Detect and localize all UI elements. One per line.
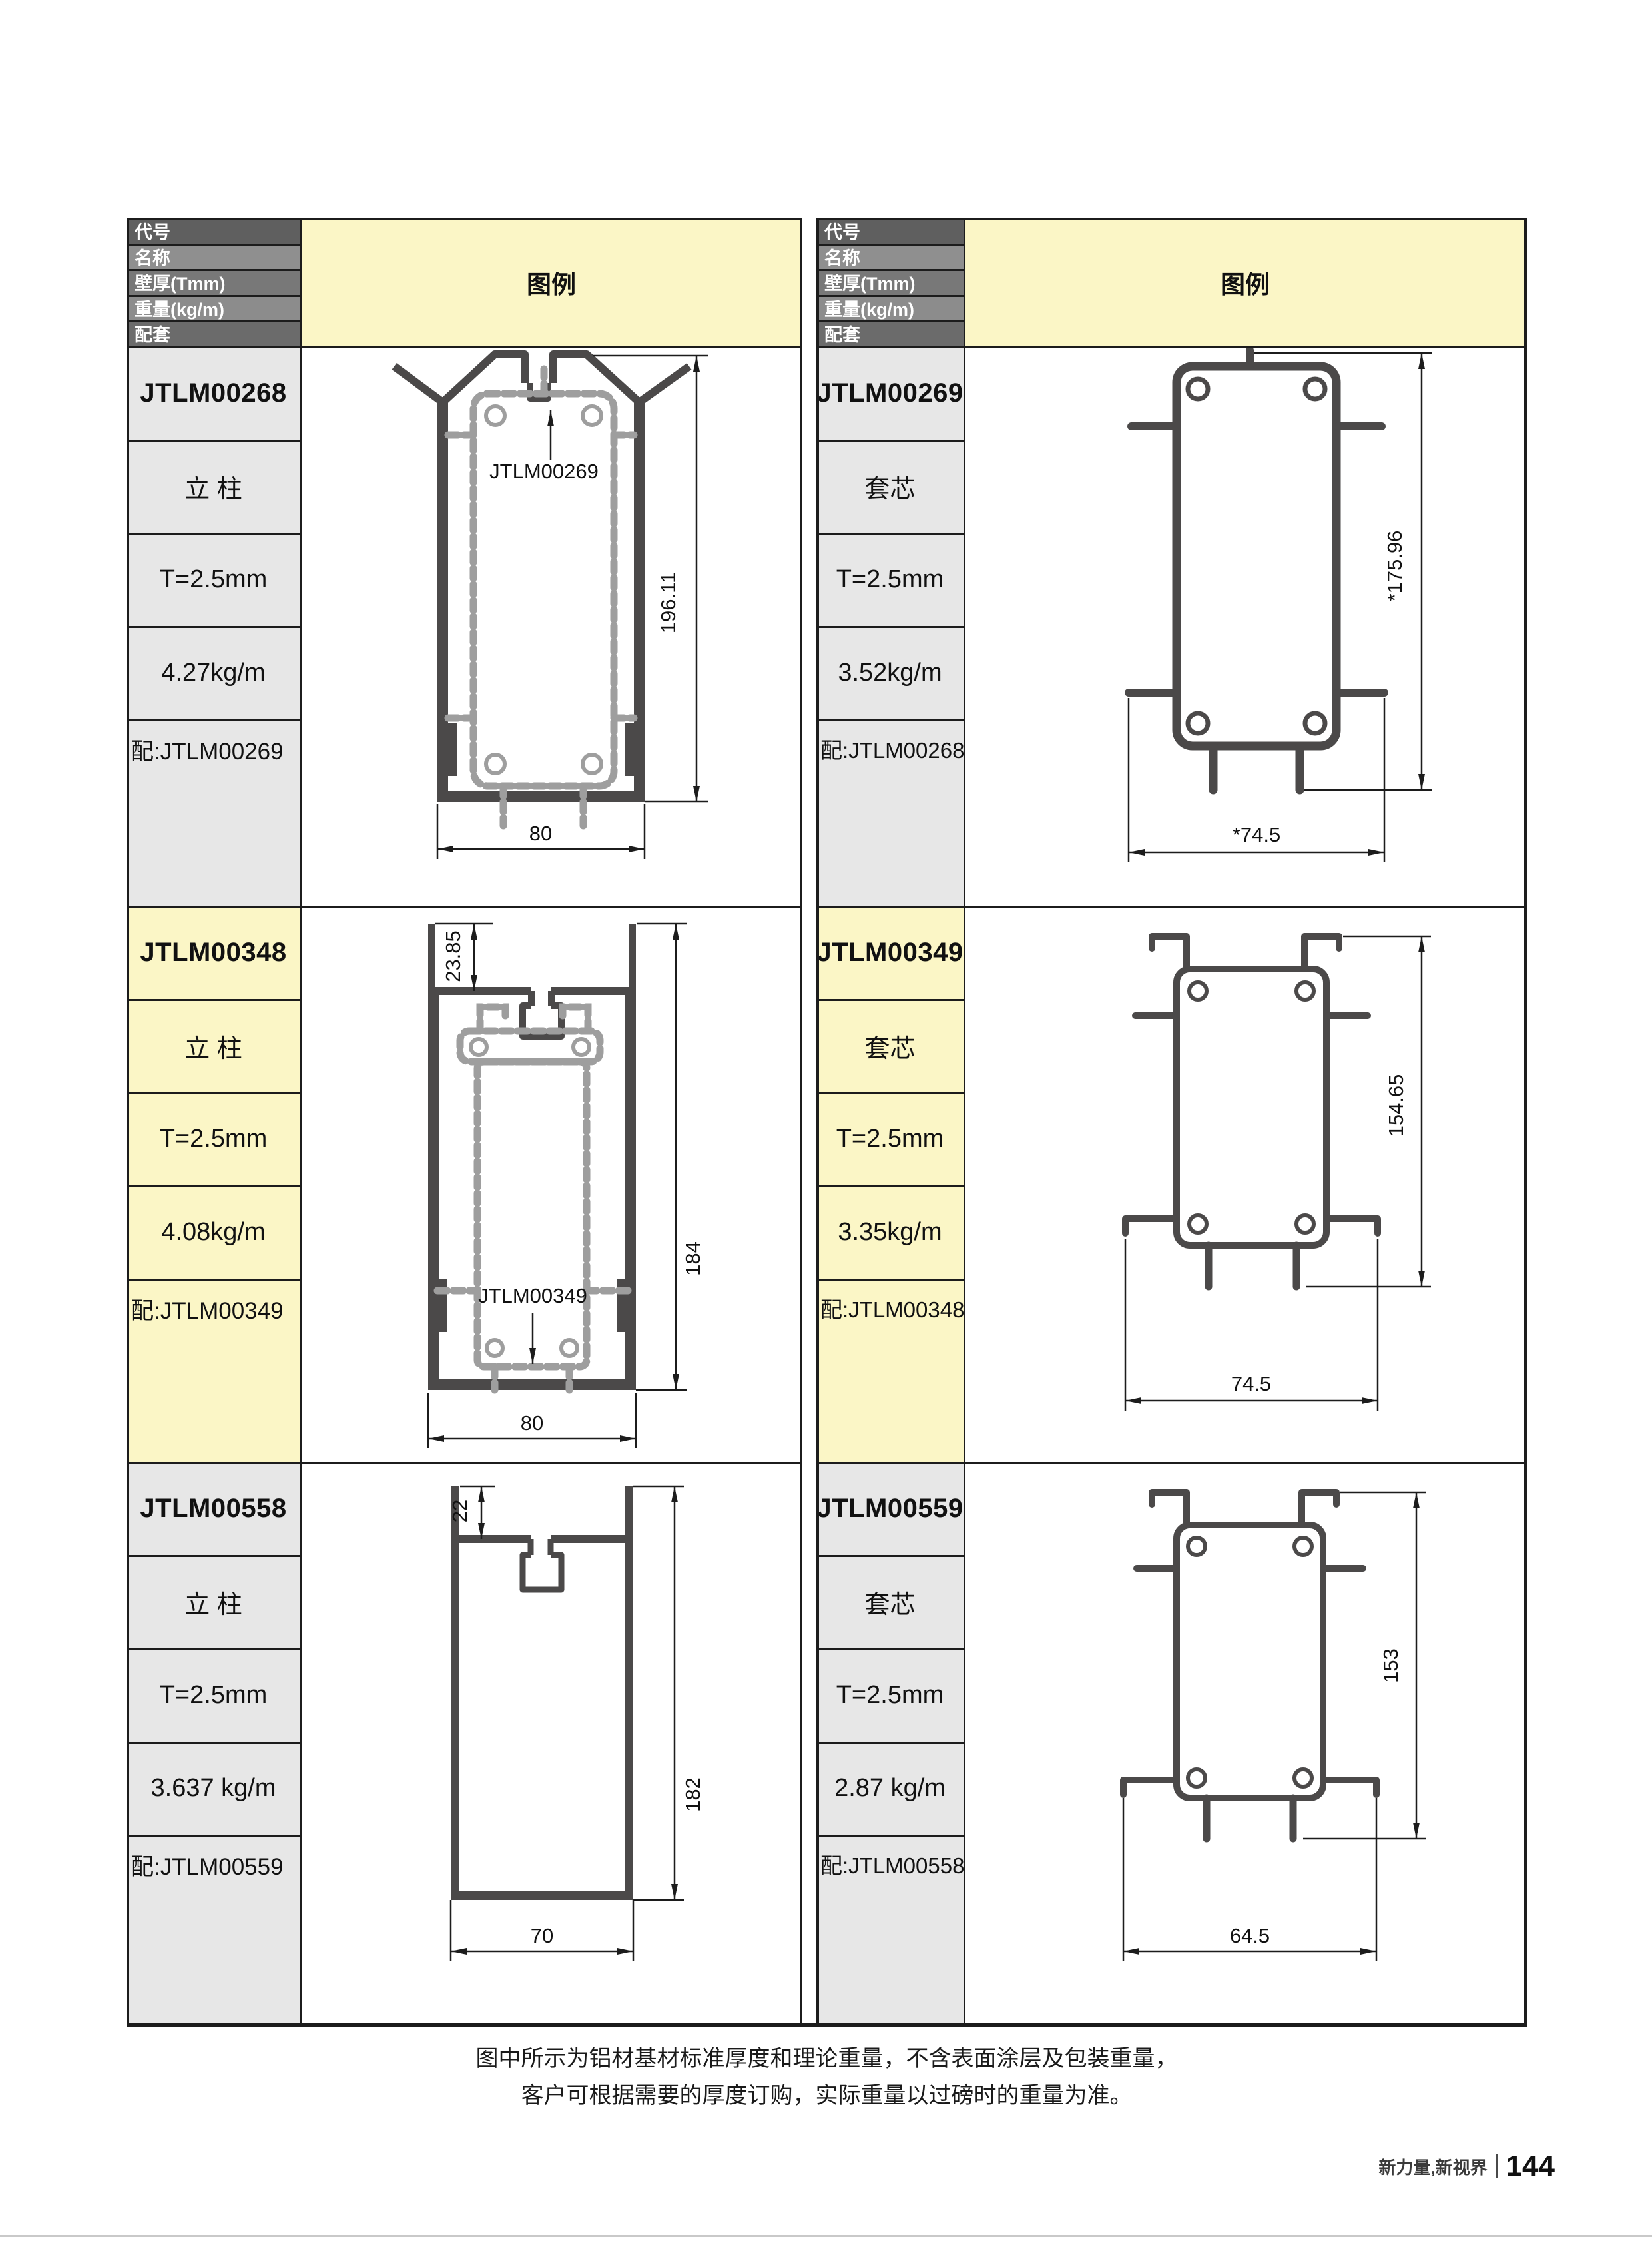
catalog-page: 代号 名称 壁厚(Tmm) 重量(kg/m) 配套 图例 JTLM00268 立… <box>0 0 1652 2241</box>
divider-line <box>816 440 964 442</box>
divider-line <box>816 1185 964 1187</box>
entry-5-weight-text: 2.87 kg/m <box>834 1774 946 1803</box>
dim-width-00559: 64.5 <box>1230 1924 1270 1947</box>
dim-height-00268: 196.11 <box>657 572 680 634</box>
entry-5-code-text: JTLM00559 <box>816 1494 963 1524</box>
entry-3-code: JTLM00349 <box>816 906 964 999</box>
divider-line <box>127 1648 300 1650</box>
diagram-jtlm00559: 153 64.5 <box>964 1462 1527 2026</box>
entry-5-match: 配:JTLM00558 <box>816 1835 964 2023</box>
legend-label: 图例 <box>527 264 576 300</box>
divider-line <box>816 719 964 721</box>
entry-2-weight-text: 4.08kg/m <box>161 1218 265 1247</box>
divider-line <box>816 218 819 2027</box>
entry-1-match: 配:JTLM00268 <box>816 719 964 906</box>
header-thickness-label-r: 壁厚(Tmm) <box>824 269 916 295</box>
entry-4-name-text: 立 柱 <box>184 1584 242 1620</box>
header-match-label-r: 配套 <box>824 320 860 346</box>
header-thickness-left: 壁厚(Tmm) <box>127 269 300 295</box>
header-name-right: 名称 <box>816 244 964 269</box>
entry-2-thickness-text: T=2.5mm <box>160 1125 268 1153</box>
entry-4-weight-text: 3.637 kg/m <box>151 1774 276 1803</box>
dim-height-00269: *175.96 <box>1383 531 1406 602</box>
diagram-jtlm00269: *175.96 *74.5 <box>964 346 1527 906</box>
divider-line <box>816 269 964 271</box>
entry-0-match: 配:JTLM00269 <box>127 719 300 906</box>
divider-line <box>127 1835 300 1837</box>
divider-line <box>816 346 1527 348</box>
divider-line <box>127 1742 300 1744</box>
divider-line <box>127 1092 300 1094</box>
divider-line <box>127 440 300 442</box>
entry-2-match: 配:JTLM00349 <box>127 1279 300 1462</box>
divider-line <box>127 320 300 322</box>
header-weight-left: 重量(kg/m) <box>127 295 300 320</box>
header-code-label: 代号 <box>135 218 170 244</box>
page-footer: 新力量,新视界 144 <box>1378 2150 1555 2183</box>
dim-height-00558: 182 <box>681 1777 704 1812</box>
divider-line <box>816 295 964 297</box>
entry-2-code: JTLM00348 <box>127 906 300 999</box>
dim-top-00348: 23.85 <box>441 930 465 982</box>
dim-width-00349: 74.5 <box>1231 1372 1271 1395</box>
entry-0-code-text: JTLM00268 <box>140 378 286 408</box>
divider-line <box>127 719 300 721</box>
divider-line <box>816 906 1527 908</box>
entry-2-name-text: 立 柱 <box>184 1028 242 1064</box>
entry-4-code: JTLM00558 <box>127 1462 300 1555</box>
diagram-jtlm00268: JTLM00269 196.11 80 <box>300 346 802 906</box>
divider-line <box>127 218 129 2027</box>
entry-3-weight-text: 3.35kg/m <box>838 1218 942 1247</box>
header-name-left: 名称 <box>127 244 300 269</box>
divider-line <box>127 269 300 271</box>
dim-height-00349: 154.65 <box>1384 1074 1408 1137</box>
entry-3-name: 套芯 <box>816 999 964 1092</box>
dim-top-00558: 22 <box>448 1500 471 1522</box>
footer-divider <box>1496 2154 1498 2178</box>
entry-0-weight: 4.27kg/m <box>127 626 300 719</box>
header-name-label-r: 名称 <box>824 244 860 270</box>
entry-3-weight: 3.35kg/m <box>816 1185 964 1279</box>
divider-line <box>816 1092 964 1094</box>
header-weight-right: 重量(kg/m) <box>816 295 964 320</box>
table-bottom-border <box>127 2023 1527 2027</box>
page-bottom-line <box>0 2235 1652 2237</box>
entry-4-weight: 3.637 kg/m <box>127 1742 300 1835</box>
entry-0-name: 立 柱 <box>127 440 300 533</box>
footnote: 图中所示为铝材基材标准厚度和理论重量，不含表面涂层及包装重量， 客户可根据需要的… <box>127 2040 1527 2114</box>
entry-1-weight-text: 3.52kg/m <box>838 659 942 687</box>
divider-line <box>816 626 964 628</box>
entry-3-match: 配:JTLM00348 <box>816 1279 964 1462</box>
divider-line <box>127 295 300 297</box>
entry-5-thickness: T=2.5mm <box>816 1648 964 1742</box>
dim-height-00348: 184 <box>681 1241 704 1276</box>
diagram-jtlm00558: 22 182 70 <box>300 1462 802 2026</box>
divider-line <box>816 1555 964 1557</box>
entry-4-thickness: T=2.5mm <box>127 1648 300 1742</box>
entry-1-weight: 3.52kg/m <box>816 626 964 719</box>
core-label-00349: JTLM00349 <box>478 1284 587 1307</box>
entry-3-thickness-text: T=2.5mm <box>836 1125 944 1153</box>
entry-3-thickness: T=2.5mm <box>816 1092 964 1185</box>
entry-5-code: JTLM00559 <box>816 1462 964 1555</box>
divider-line <box>127 244 300 246</box>
divider-line <box>127 1555 300 1557</box>
diagram-jtlm00348: 23.85 JTLM00349 184 80 <box>300 906 802 1462</box>
divider-line <box>964 218 965 2027</box>
entry-0-match-text: 配:JTLM00269 <box>131 733 284 767</box>
header-name-label: 名称 <box>135 244 170 270</box>
divider-line <box>816 1648 964 1650</box>
entry-2-weight: 4.08kg/m <box>127 1185 300 1279</box>
entry-5-name-text: 套芯 <box>864 1584 915 1620</box>
header-weight-label: 重量(kg/m) <box>135 295 224 321</box>
dim-width-00268: 80 <box>529 822 552 845</box>
entry-4-match: 配:JTLM00559 <box>127 1835 300 2023</box>
entry-0-weight-text: 4.27kg/m <box>161 659 265 687</box>
footer-slogan: 新力量,新视界 <box>1378 2154 1487 2179</box>
footnote-line1: 图中所示为铝材基材标准厚度和理论重量，不含表面涂层及包装重量， <box>127 2040 1527 2077</box>
divider-line <box>127 1185 300 1187</box>
entry-1-name-text: 套芯 <box>864 468 915 505</box>
divider-line <box>127 346 802 348</box>
divider-line <box>816 1835 964 1837</box>
header-code-left: 代号 <box>127 218 300 244</box>
entry-4-match-text: 配:JTLM00559 <box>131 1848 284 1882</box>
entry-1-thickness-text: T=2.5mm <box>836 565 944 594</box>
entry-0-code: JTLM00268 <box>127 346 300 440</box>
header-thickness-right: 壁厚(Tmm) <box>816 269 964 295</box>
entry-3-code-text: JTLM00349 <box>816 938 963 968</box>
entry-0-thickness: T=2.5mm <box>127 533 300 626</box>
entry-2-name: 立 柱 <box>127 999 300 1092</box>
entry-4-code-text: JTLM00558 <box>140 1494 286 1524</box>
legend-header-right: 图例 <box>964 218 1527 346</box>
dim-width-00269: *74.5 <box>1233 823 1280 846</box>
divider-line <box>816 244 964 246</box>
entry-1-name: 套芯 <box>816 440 964 533</box>
entry-4-thickness-text: T=2.5mm <box>160 1681 268 1710</box>
entry-0-thickness-text: T=2.5mm <box>160 565 268 594</box>
diagram-jtlm00349: 154.65 74.5 <box>964 906 1527 1462</box>
divider-line <box>127 1462 802 1464</box>
divider-line <box>127 218 802 220</box>
divider-line <box>816 533 964 535</box>
entry-3-match-text: 配:JTLM00348 <box>820 1292 964 1324</box>
header-match-left: 配套 <box>127 320 300 346</box>
divider-line <box>127 906 802 908</box>
entry-0-name-text: 立 柱 <box>184 468 242 505</box>
divider-line <box>300 218 302 2027</box>
entry-1-code: JTLM00269 <box>816 346 964 440</box>
divider-line <box>1524 218 1527 2027</box>
dim-width-00348: 80 <box>521 1411 543 1435</box>
entry-5-match-text: 配:JTLM00558 <box>820 1848 964 1880</box>
core-label-00269: JTLM00269 <box>489 460 599 483</box>
page-number: 144 <box>1506 2150 1555 2183</box>
entry-4-name: 立 柱 <box>127 1555 300 1648</box>
divider-line <box>816 218 1527 220</box>
divider-line <box>816 1279 964 1281</box>
entry-5-name: 套芯 <box>816 1555 964 1648</box>
header-match-right: 配套 <box>816 320 964 346</box>
entry-2-thickness: T=2.5mm <box>127 1092 300 1185</box>
entry-5-weight: 2.87 kg/m <box>816 1742 964 1835</box>
header-code-label-r: 代号 <box>824 218 860 244</box>
entry-5-thickness-text: T=2.5mm <box>836 1681 944 1710</box>
divider-line <box>800 218 802 2027</box>
header-thickness-label: 壁厚(Tmm) <box>135 269 226 295</box>
entry-2-code-text: JTLM00348 <box>140 938 286 968</box>
legend-header-left: 图例 <box>300 218 802 346</box>
divider-line <box>127 999 300 1001</box>
header-match-label: 配套 <box>135 320 170 346</box>
footnote-line2: 客户可根据需要的厚度订购，实际重量以过磅时的重量为准。 <box>127 2077 1527 2114</box>
entry-3-name-text: 套芯 <box>864 1028 915 1064</box>
legend-label-r: 图例 <box>1221 264 1270 300</box>
divider-line <box>816 999 964 1001</box>
dim-width-00558: 70 <box>531 1924 553 1947</box>
divider-line <box>127 1279 300 1281</box>
divider-line <box>816 320 964 322</box>
entry-1-match-text: 配:JTLM00268 <box>820 733 964 765</box>
entry-1-thickness: T=2.5mm <box>816 533 964 626</box>
divider-line <box>816 1742 964 1744</box>
dim-height-00559: 153 <box>1379 1648 1402 1683</box>
divider-line <box>127 533 300 535</box>
header-weight-label-r: 重量(kg/m) <box>824 295 914 321</box>
header-code-right: 代号 <box>816 218 964 244</box>
divider-line <box>127 626 300 628</box>
entry-2-match-text: 配:JTLM00349 <box>131 1292 284 1326</box>
entry-1-code-text: JTLM00269 <box>816 378 963 408</box>
divider-line <box>816 1462 1527 1464</box>
